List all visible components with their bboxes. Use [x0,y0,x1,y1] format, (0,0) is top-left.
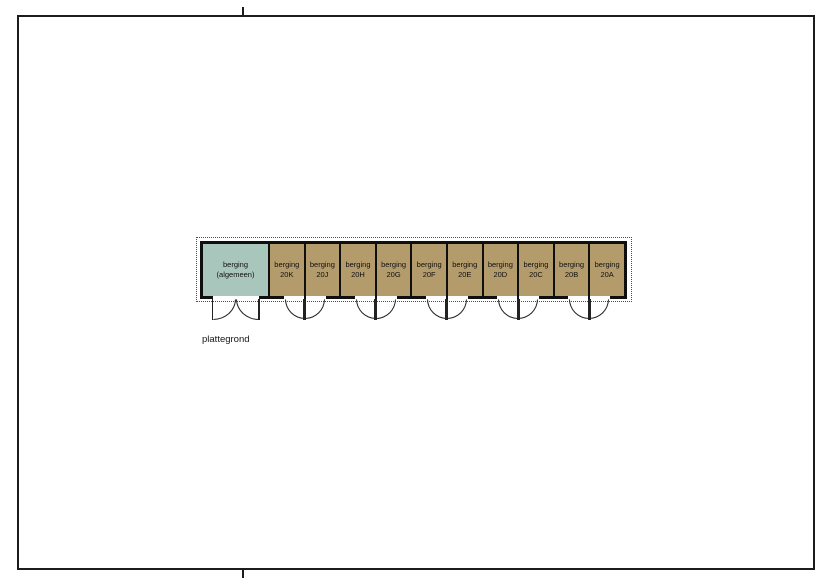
room-number: 20D [488,270,513,280]
room-label: berging 20G [381,260,406,280]
room-label: berging 20E [452,260,477,280]
room-berging-20A: berging 20A [590,244,624,296]
room-number: 20A [595,270,620,280]
drawing-caption: plattegrond [202,334,250,345]
room-number: 20K [274,270,299,280]
room-name: berging [310,260,335,270]
room-name: berging [217,260,255,270]
room-label: berging 20B [559,260,584,280]
room-name: berging [381,260,406,270]
room-number: 20E [452,270,477,280]
room-number: 20B [559,270,584,280]
room-number: 20H [345,270,370,280]
room-berging-20G: berging 20G [377,244,411,296]
double-door-symbol [213,296,259,320]
room-berging-20B: berging 20B [555,244,589,296]
room-label: berging 20D [488,260,513,280]
room-label: berging 20F [417,260,442,280]
room-number: 20F [417,270,442,280]
door-swing-arc-right [236,299,259,320]
room-number: 20C [523,270,548,280]
door-swing-arc-left [213,299,236,320]
storage-building-floorplan: berging (algemeen) berging 20K berging 2… [200,241,627,299]
room-name: berging [595,260,620,270]
room-label: berging 20K [274,260,299,280]
room-name: berging [523,260,548,270]
room-berging-20F: berging 20F [412,244,446,296]
room-name: berging [345,260,370,270]
room-berging-20H: berging 20H [341,244,375,296]
room-number: 20G [381,270,406,280]
room-name: berging [274,260,299,270]
room-berging-20D: berging 20D [484,244,518,296]
room-label: berging 20H [345,260,370,280]
room-berging-20E: berging 20E [448,244,482,296]
room-berging-20J: berging 20J [306,244,340,296]
trim-mark-bottom [242,569,244,578]
room-label: berging (algemeen) [217,260,255,280]
room-berging-20K: berging 20K [270,244,304,296]
room-berging-algemeen: berging (algemeen) [203,244,268,296]
room-label: berging 20J [310,260,335,280]
room-name: berging [488,260,513,270]
room-name: berging [417,260,442,270]
room-label: berging 20C [523,260,548,280]
room-berging-20C: berging 20C [519,244,553,296]
room-label: berging 20A [595,260,620,280]
room-number: (algemeen) [217,270,255,280]
room-number: 20J [310,270,335,280]
room-name: berging [559,260,584,270]
room-name: berging [452,260,477,270]
trim-mark-top [242,7,244,16]
